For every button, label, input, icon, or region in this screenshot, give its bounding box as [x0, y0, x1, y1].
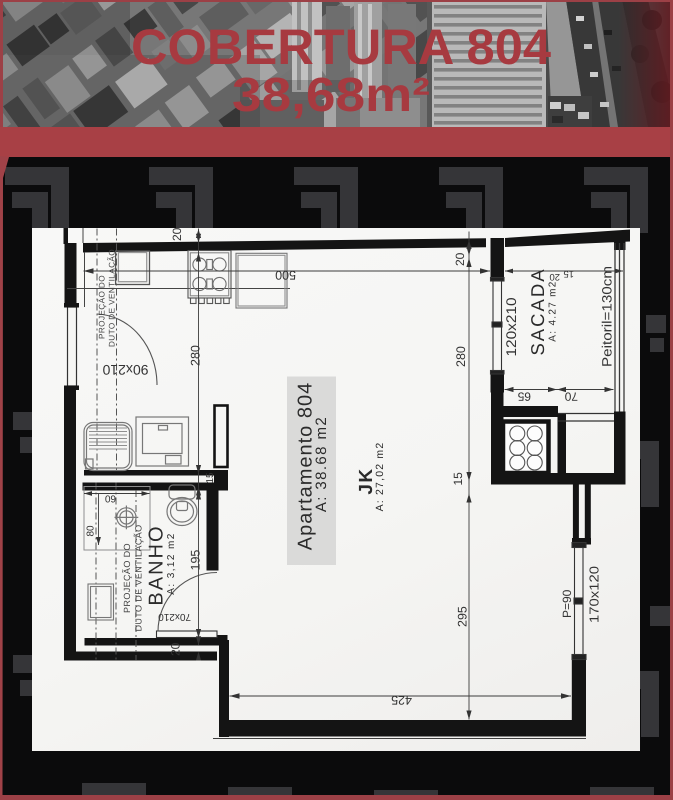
svg-text:20: 20	[169, 642, 183, 656]
svg-text:A: 27,02 m2: A: 27,02 m2	[374, 442, 386, 512]
svg-text:15: 15	[451, 472, 465, 486]
svg-text:90x210: 90x210	[102, 362, 148, 378]
svg-text:DUTO DE VENTILAÇÃO: DUTO DE VENTILAÇÃO	[134, 524, 144, 631]
svg-text:70: 70	[564, 390, 578, 404]
svg-text:15: 15	[205, 472, 216, 484]
svg-text:BANHO: BANHO	[146, 524, 168, 605]
svg-text:280: 280	[189, 345, 203, 366]
svg-text:195: 195	[189, 550, 203, 571]
svg-text:20: 20	[170, 228, 184, 241]
svg-text:A: 4.27 m2: A: 4.27 m2	[548, 280, 559, 341]
svg-text:15: 15	[563, 268, 574, 279]
svg-text:A: 38.68 m2: A: 38.68 m2	[313, 416, 330, 512]
svg-text:65: 65	[517, 390, 531, 404]
svg-text:170x120: 170x120	[587, 566, 602, 623]
svg-text:PROJEÇÃO DO: PROJEÇÃO DO	[122, 543, 132, 613]
svg-text:20: 20	[453, 252, 467, 266]
svg-text:60: 60	[104, 493, 116, 504]
svg-text:120x210: 120x210	[503, 297, 519, 356]
svg-text:500: 500	[275, 268, 296, 282]
svg-text:80: 80	[86, 525, 97, 537]
svg-text:280: 280	[454, 346, 468, 367]
svg-text:38,68m²: 38,68m²	[232, 69, 430, 122]
svg-text:DUTO DE VENTILAÇÃO: DUTO DE VENTILAÇÃO	[107, 249, 117, 347]
svg-text:P=90: P=90	[560, 589, 574, 618]
svg-text:PROJEÇÃO DO: PROJEÇÃO DO	[97, 275, 107, 339]
svg-text:Peitoril=130cm: Peitoril=130cm	[600, 266, 615, 367]
svg-text:SACADA: SACADA	[527, 267, 548, 355]
svg-text:425: 425	[391, 693, 412, 707]
svg-text:70x210: 70x210	[158, 611, 191, 622]
svg-text:COBERTURA 804: COBERTURA 804	[131, 19, 551, 75]
svg-text:A: 3,12 m2: A: 3,12 m2	[166, 532, 177, 594]
svg-text:295: 295	[456, 606, 470, 627]
